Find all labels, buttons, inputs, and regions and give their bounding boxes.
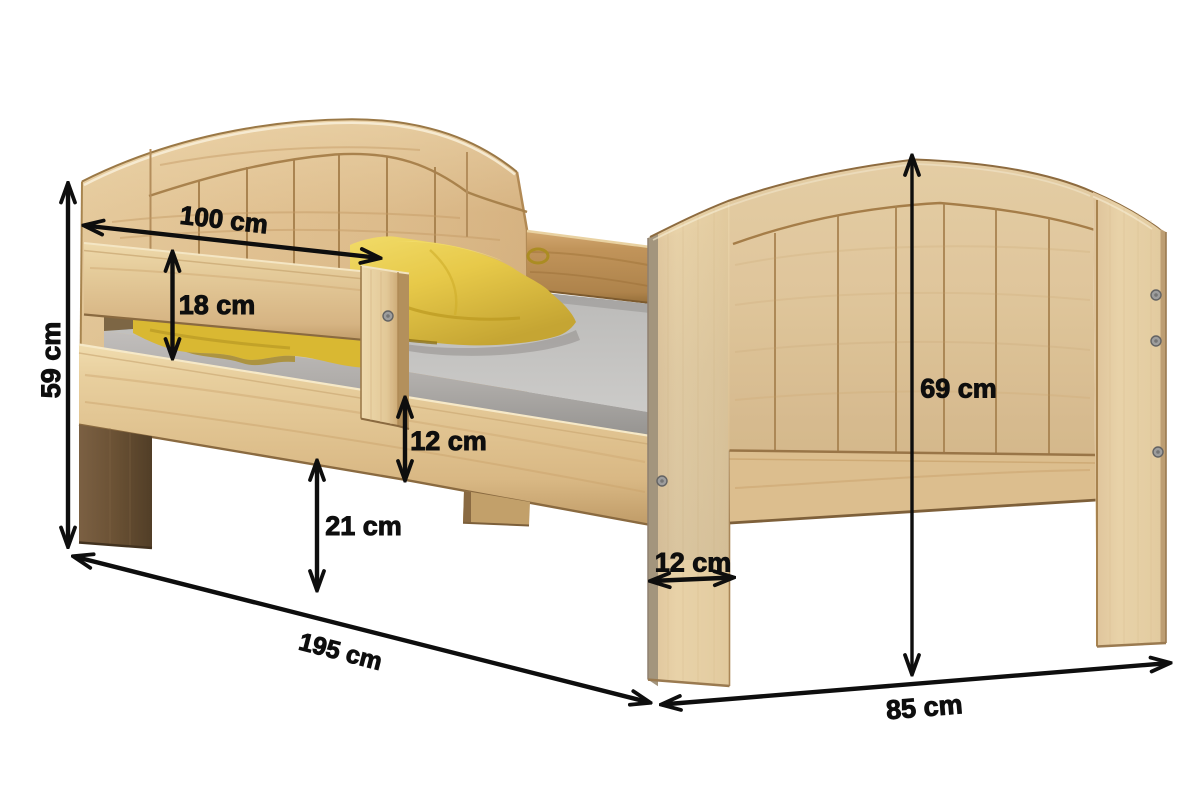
svg-text:59 cm: 59 cm	[36, 322, 66, 399]
svg-text:85 cm: 85 cm	[885, 689, 964, 725]
svg-text:12 cm: 12 cm	[655, 548, 732, 578]
svg-text:18 cm: 18 cm	[179, 290, 256, 320]
svg-text:21 cm: 21 cm	[325, 511, 402, 541]
svg-text:69 cm: 69 cm	[920, 374, 997, 404]
svg-text:12 cm: 12 cm	[410, 426, 487, 456]
